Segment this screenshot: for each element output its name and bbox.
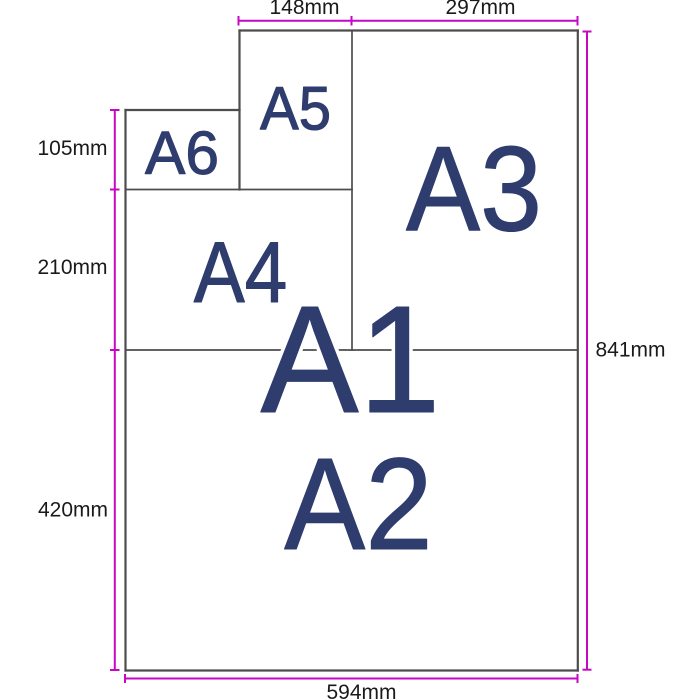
svg-text:841mm: 841mm <box>596 339 666 362</box>
svg-text:148mm: 148mm <box>269 0 339 19</box>
svg-text:594mm: 594mm <box>326 681 396 700</box>
svg-text:A2: A2 <box>284 431 433 577</box>
svg-text:420mm: 420mm <box>38 499 108 522</box>
svg-text:A6: A6 <box>145 119 219 188</box>
svg-text:A3: A3 <box>406 121 542 257</box>
svg-text:105mm: 105mm <box>37 137 107 160</box>
svg-text:297mm: 297mm <box>445 0 515 19</box>
svg-text:A1: A1 <box>261 275 441 445</box>
svg-text:A5: A5 <box>260 75 331 144</box>
svg-text:210mm: 210mm <box>37 256 107 279</box>
